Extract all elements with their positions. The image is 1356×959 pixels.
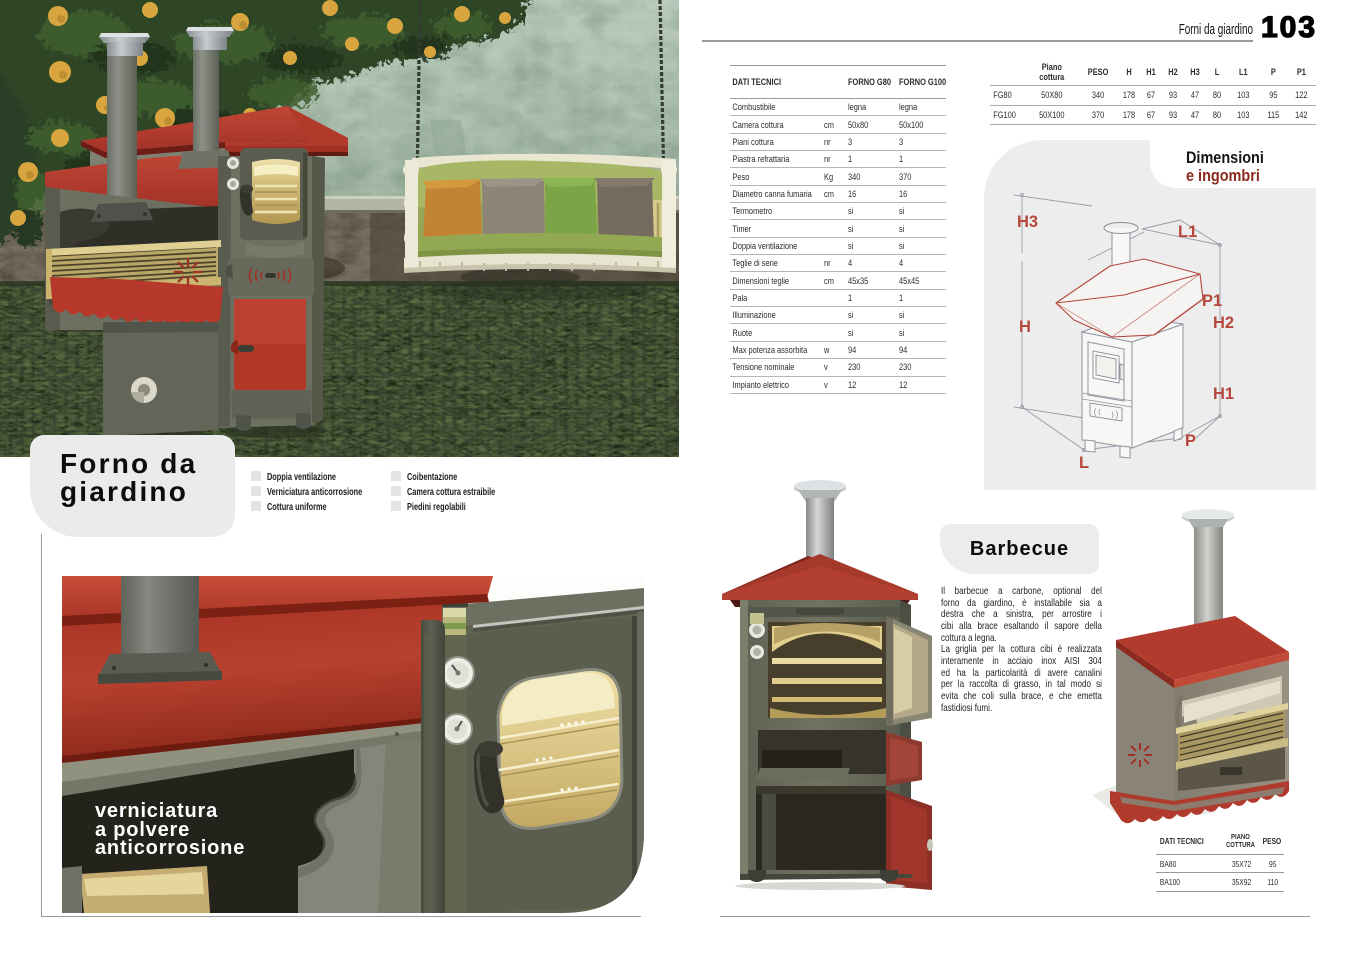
svg-text:H1: H1 bbox=[1213, 385, 1234, 403]
svg-text:H3: H3 bbox=[1017, 213, 1038, 231]
svg-text:L1: L1 bbox=[1178, 223, 1197, 241]
svg-text:H2: H2 bbox=[1213, 314, 1234, 332]
svg-text:P: P bbox=[1185, 432, 1196, 450]
svg-text:H: H bbox=[1019, 318, 1031, 336]
svg-text:P1: P1 bbox=[1202, 292, 1222, 310]
svg-text:L: L bbox=[1079, 454, 1089, 472]
